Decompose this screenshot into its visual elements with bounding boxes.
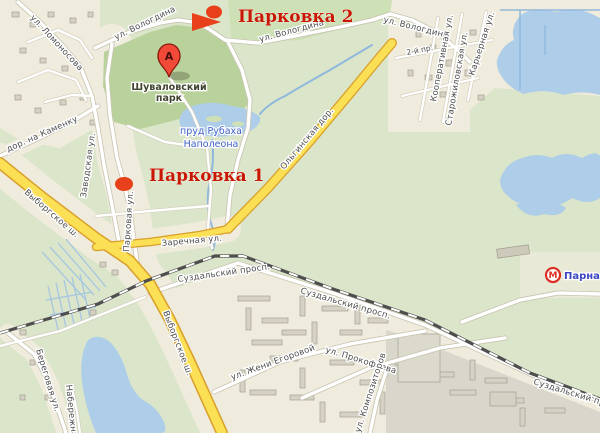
pin-letter: А (165, 50, 174, 63)
map-canvas[interactable]: ул. Ломоносова ул. Вологдина ул. Вологди… (0, 0, 600, 433)
park-label-line2: парк (156, 93, 183, 104)
metro-station-label: Парнас (564, 271, 600, 282)
metro-m-letter: М (549, 271, 558, 281)
pond-label-line1: пруд Рубаха (180, 126, 242, 137)
park-label-line1: Шуваловский (131, 82, 206, 93)
metro-station-parnas[interactable]: М Парнас (546, 268, 600, 282)
parking2-dot[interactable] (206, 6, 222, 19)
pond-label-line2: Наполеона (184, 139, 239, 150)
lakes-east (500, 153, 600, 206)
map-viewport[interactable]: ул. Ломоносова ул. Вологдина ул. Вологди… (0, 0, 600, 433)
parking1-dot[interactable] (115, 177, 133, 191)
parking1-label: Парковка 1 (149, 166, 264, 186)
parking2-label: Парковка 2 (238, 7, 353, 27)
